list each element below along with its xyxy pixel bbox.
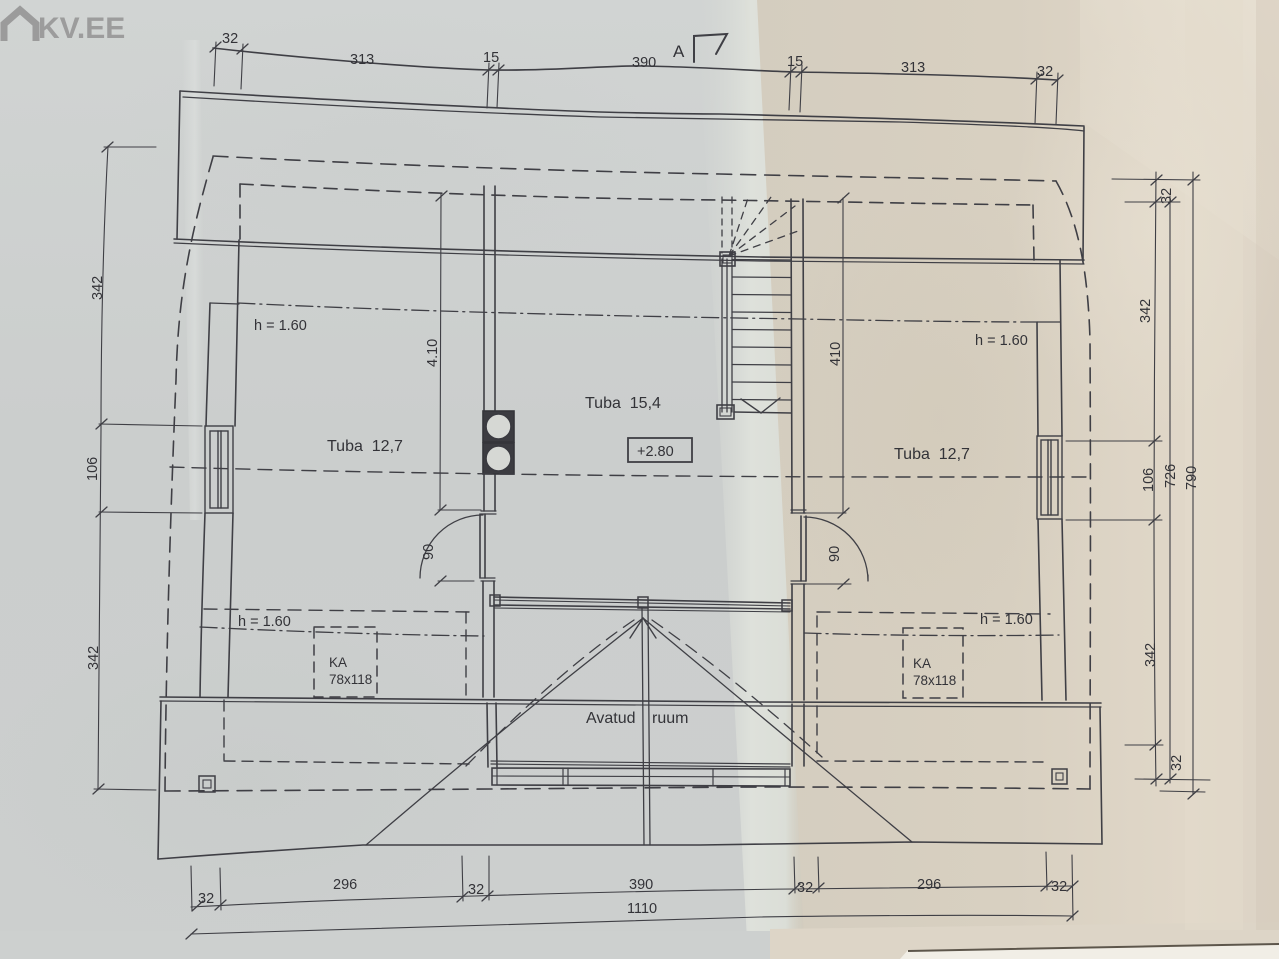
svg-text:h = 1.60: h = 1.60	[254, 318, 307, 334]
svg-text:ruum: ruum	[652, 710, 688, 727]
svg-text:+2.80: +2.80	[637, 444, 674, 460]
svg-text:h = 1.60: h = 1.60	[980, 612, 1033, 628]
svg-text:296: 296	[917, 877, 941, 893]
svg-text:15: 15	[787, 54, 803, 70]
svg-text:1110: 1110	[627, 901, 657, 917]
svg-text:390: 390	[632, 55, 656, 71]
svg-text:106: 106	[1141, 468, 1157, 492]
svg-text:A: A	[673, 42, 685, 61]
svg-text:32: 32	[198, 891, 214, 907]
svg-text:313: 313	[901, 60, 925, 76]
svg-text:h = 1.60: h = 1.60	[975, 333, 1028, 349]
svg-text:32: 32	[468, 882, 484, 898]
svg-text:296: 296	[333, 877, 357, 893]
svg-text:313: 313	[350, 52, 374, 68]
svg-text:Tuba 12,7: Tuba 12,7	[327, 438, 403, 455]
svg-text:390: 390	[629, 877, 653, 893]
svg-text:KA: KA	[913, 656, 931, 671]
svg-text:106: 106	[85, 457, 101, 481]
svg-text:790: 790	[1184, 466, 1200, 490]
svg-text:32: 32	[1169, 755, 1185, 771]
svg-text:78x118: 78x118	[913, 673, 956, 688]
svg-text:Tuba 12,7: Tuba 12,7	[894, 446, 970, 463]
svg-text:726: 726	[1163, 464, 1179, 488]
svg-text:32: 32	[1159, 188, 1175, 204]
svg-text:15: 15	[483, 50, 499, 66]
svg-text:KV.EE: KV.EE	[38, 12, 125, 45]
svg-text:90: 90	[421, 544, 437, 560]
svg-text:342: 342	[1138, 299, 1154, 323]
svg-text:78x118: 78x118	[329, 672, 372, 687]
svg-text:342: 342	[1143, 643, 1159, 667]
svg-text:32: 32	[1051, 879, 1067, 895]
svg-text:32: 32	[1037, 64, 1053, 80]
svg-text:342: 342	[86, 646, 102, 670]
svg-text:90: 90	[827, 546, 843, 562]
svg-text:KA: KA	[329, 655, 347, 670]
svg-text:Tuba 15,4: Tuba 15,4	[585, 395, 661, 412]
svg-text:410: 410	[828, 342, 844, 366]
svg-text:32: 32	[797, 880, 813, 896]
svg-text:4.10: 4.10	[425, 339, 441, 367]
svg-text:Avatud: Avatud	[586, 710, 636, 727]
svg-text:32: 32	[222, 31, 238, 47]
svg-text:h = 1.60: h = 1.60	[238, 614, 291, 630]
svg-text:342: 342	[90, 276, 106, 300]
